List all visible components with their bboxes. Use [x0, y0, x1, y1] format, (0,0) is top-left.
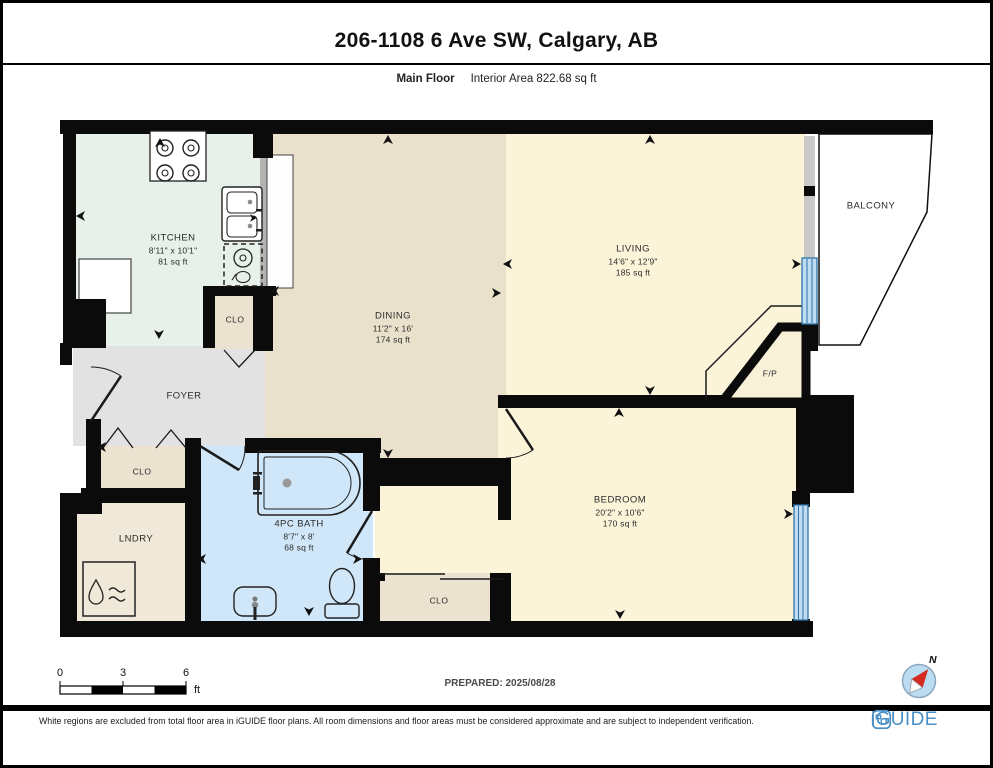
room-label-dining: DINING 11'2" x 16' 174 sq ft [373, 311, 413, 346]
footer-divider [3, 705, 990, 711]
scale-tick-0: 0 [57, 667, 63, 679]
kitchen-sink-icon [222, 187, 262, 241]
kitchen-stove-icon [150, 131, 206, 181]
room-label-foyer: FOYER [167, 391, 202, 404]
floor-plan-svg: N [3, 3, 993, 768]
scale-unit: ft [194, 684, 200, 696]
disclaimer-text: White regions are excluded from total fl… [39, 716, 754, 726]
balcony-outline [819, 134, 932, 345]
room-label-living: LIVING 14'6" x 12'9" 185 sq ft [608, 244, 657, 279]
room-label-closet-3: CLO [430, 595, 449, 606]
room-label-closet-1: CLO [226, 314, 245, 325]
iguide-logo: iGUIDE [871, 709, 938, 731]
room-label-laundry: LNDRY [119, 534, 153, 547]
compass-north-label: N [929, 654, 937, 666]
window-ledge [804, 136, 815, 258]
prepared-date: PREPARED: 2025/08/28 [445, 678, 556, 689]
iguide-logo-icon [871, 709, 892, 730]
patio-door-window [802, 258, 817, 324]
room-label-bath: 4PC BATH 8'7" x 8' 68 sq ft [274, 519, 323, 554]
floor-plan-page: 206-1108 6 Ave SW, Calgary, AB Main Floo… [0, 0, 993, 768]
room-label-balcony: BALCONY [847, 201, 896, 214]
bedroom-window [794, 505, 808, 620]
room-label-bedroom: BEDROOM 20'2" x 10'6" 170 sq ft [594, 495, 646, 530]
compass-icon: N [903, 654, 938, 698]
scale-bar [60, 681, 186, 694]
room-label-kitchen: KITCHEN 8'11" x 10'1" 81 sq ft [149, 233, 198, 268]
scale-tick-6: 6 [183, 667, 189, 679]
room-label-closet-2: CLO [133, 466, 152, 477]
room-label-fireplace: F/P [763, 368, 778, 379]
scale-tick-3: 3 [120, 667, 126, 679]
room-fills [73, 131, 806, 623]
